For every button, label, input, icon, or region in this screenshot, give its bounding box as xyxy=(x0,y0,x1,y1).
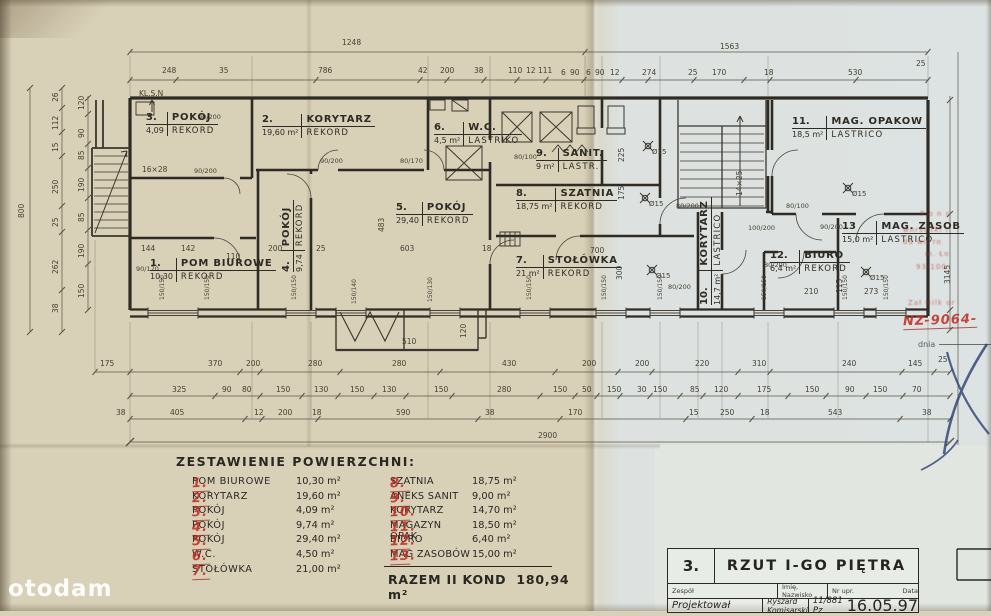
dim-label: 248 xyxy=(162,67,176,75)
room-label: 6. W.C. 4,5 m² LASTRIKO xyxy=(434,122,522,146)
dim-label: 100/200 xyxy=(748,225,775,232)
stamp-text-fragment: m. Ło xyxy=(925,250,950,258)
room-floor-finish: LASTRICO xyxy=(827,129,925,140)
dim-label: 225 xyxy=(618,148,626,162)
dim-label: 12 xyxy=(526,67,536,75)
summary-row-area: 4,09 m² xyxy=(296,505,390,516)
room-area: 4,5 m² xyxy=(434,135,464,146)
room-number: 3. xyxy=(146,112,168,125)
room-name: POKÓJ xyxy=(168,112,218,125)
summary-row-area: 4,50 m² xyxy=(296,549,390,560)
dim-label: 90/200 xyxy=(820,224,843,231)
room-number: 7. xyxy=(516,255,544,268)
room-area: 9,74 xyxy=(294,250,305,272)
dim-label: 90 xyxy=(595,69,605,77)
dim-label: 90 xyxy=(570,69,580,77)
room-name: SZATNIA xyxy=(556,188,617,201)
room-label: 5. POKÓJ 29,40 REKORD xyxy=(396,202,473,226)
dim-label: 150/150 xyxy=(843,275,849,300)
summary-row: 7. STOŁÓWKA 21,00 m² xyxy=(192,564,390,579)
summary-total-rule xyxy=(384,566,552,567)
title-block-extension xyxy=(957,549,991,580)
summary-row-area: 18,75 m² xyxy=(472,476,586,487)
room-number: 1. xyxy=(150,258,177,271)
summary-row-area: 15,00 m² xyxy=(472,549,586,560)
dim-label: 142 xyxy=(181,245,195,253)
dim-label: 80/200 xyxy=(676,203,699,210)
room-area: 14,7 m² xyxy=(712,270,723,305)
dim-label: 310 xyxy=(752,360,766,368)
room-area: 18,5 m² xyxy=(792,129,827,140)
dim-label: 170 xyxy=(712,69,726,77)
dim-label: Ø15 xyxy=(852,191,866,198)
summary-row-area: 29,40 m² xyxy=(296,534,390,545)
room-number: 5. xyxy=(396,202,423,215)
dim-label: Ø15 xyxy=(649,201,663,208)
staircase-left xyxy=(92,100,130,236)
room-area: 18,75 m² xyxy=(516,201,556,212)
room-area: 21 m² xyxy=(516,268,544,279)
dim-label: 210 xyxy=(804,288,818,296)
dim-label: 50 xyxy=(582,386,592,394)
dim-label: 150 xyxy=(607,386,621,394)
room-label: 2. KORYTARZ 19,60 m² REKORD xyxy=(262,114,375,138)
room-label: 8. SZATNIA 18,75 m² REKORD xyxy=(516,188,617,212)
dim-label: 25 xyxy=(688,69,698,77)
summary-row: 8. SZATNIA 18,75 m² xyxy=(390,476,586,491)
summary-row: 10. KORYTARZ 14,70 m² xyxy=(390,505,586,520)
dim-label: 150 xyxy=(805,386,819,394)
dim-label: 25 xyxy=(938,356,948,364)
dim-label: 16×28 xyxy=(142,166,167,174)
room-number: 11. xyxy=(792,116,827,129)
dim-label: 175 xyxy=(100,360,114,368)
dim-label: 18 xyxy=(312,409,322,417)
dim-label: 483 xyxy=(378,218,386,232)
dim-label: 430 xyxy=(502,360,516,368)
dim-label: 280 xyxy=(497,386,511,394)
dim-label: 262 xyxy=(52,260,60,274)
summary-row: 3. POKÓJ 4,09 m² xyxy=(192,505,390,520)
dim-label: 90/200 xyxy=(320,158,343,165)
dim-label: 370 xyxy=(208,360,222,368)
dim-label: 150/140 xyxy=(352,279,358,304)
title-block-values: ProjektowałRyszard Komisarski11/881 Pz16… xyxy=(668,599,918,612)
dim-label: 274 xyxy=(642,69,656,77)
room-name: BIURO xyxy=(800,250,850,263)
scanned-floor-plan: 1248156324835786422003811012111690690122… xyxy=(0,0,991,611)
dim-label: 110 xyxy=(508,67,522,75)
dim-label: 85 xyxy=(690,386,700,394)
room-floor-finish: REKORD xyxy=(294,200,305,250)
dim-label: 120 xyxy=(78,96,86,110)
dim-label: 150/150 xyxy=(884,275,890,300)
dim-label: 112 xyxy=(52,116,60,130)
dim-label: 250 xyxy=(52,180,60,194)
dim-label: 26 xyxy=(52,92,60,102)
summary-row: 5. POKÓJ 29,40 m² xyxy=(192,534,390,549)
watermark: otodam xyxy=(8,576,113,602)
room-number: 12. xyxy=(770,250,800,263)
dim-label: 240 xyxy=(842,360,856,368)
room-floor-finish: REKORD xyxy=(177,271,276,282)
dim-label: 700 xyxy=(590,247,604,255)
title-block-value-cell: 16.05.97 xyxy=(843,599,918,612)
dim-label: 175 xyxy=(757,386,771,394)
room-label: 4. POKÓJ 9,74 REKORD xyxy=(281,200,305,272)
summary-row-area: 9,00 m² xyxy=(472,491,586,502)
dim-label: 170 xyxy=(568,409,582,417)
stamp-text-fragment: P o n s xyxy=(920,210,950,218)
room-area: 9 m² xyxy=(536,161,559,172)
dim-label: 150 xyxy=(434,386,448,394)
summary-title: ZESTAWIENIE POWIERZCHNI: xyxy=(176,454,415,469)
dim-label: 273 xyxy=(864,288,878,296)
summary-row-area: 19,60 m² xyxy=(296,491,390,502)
dim-label: 175 xyxy=(618,186,626,200)
dim-label: 42 xyxy=(418,67,428,75)
title-block-value-cell: Projektował xyxy=(668,599,763,612)
dim-label: 12 xyxy=(254,409,264,417)
dim-label: 150 xyxy=(276,386,290,394)
summary-row-number: 13. xyxy=(390,549,411,566)
summary-row: 9. ANEKS SANIT 9,00 m² xyxy=(390,491,586,506)
dim-label: 150 xyxy=(653,386,667,394)
dim-label: 150 xyxy=(553,386,567,394)
dim-label: 80 xyxy=(242,386,252,394)
dim-label: 1563 xyxy=(720,43,739,51)
room-number: 4. xyxy=(281,250,294,272)
dim-label: 200 xyxy=(278,409,292,417)
dim-label: 70 xyxy=(912,386,922,394)
room-floor-finish: REKORD xyxy=(302,127,374,138)
dim-label: 603 xyxy=(400,245,414,253)
dim-label: 543 xyxy=(828,409,842,417)
room-area: 6,4 m² xyxy=(770,263,800,274)
summary-row-area: 10,30 m² xyxy=(296,476,390,487)
summary-total: RAZEM II KOND180,94 m² xyxy=(388,572,586,602)
dim-label: 220 xyxy=(695,360,709,368)
dim-label: 150/130 xyxy=(428,277,434,302)
room-number: 6. xyxy=(434,122,464,135)
room-label: 12. BIURO 6,4 m² REKORD xyxy=(770,250,850,274)
room-name: SANIT. xyxy=(559,148,607,161)
dim-label: 38 xyxy=(474,67,484,75)
dim-label: 144 xyxy=(141,245,155,253)
title-block: 3. RZUT I-GO PIĘTRA ZespółImię, Nazwisko… xyxy=(667,548,919,613)
room-floor-finish: REKORD xyxy=(800,263,850,274)
dim-label: 80/100 xyxy=(514,154,537,161)
dim-label: Ø15 xyxy=(870,275,884,282)
room-number: 8. xyxy=(516,188,556,201)
dim-label: 25 xyxy=(916,60,926,68)
dim-label: 120 xyxy=(460,324,468,338)
dim-label: 280 xyxy=(308,360,322,368)
summary-row: 13. MAG ZASOBÓW 15,00 m² xyxy=(390,549,586,564)
dim-label: 18 xyxy=(760,409,770,417)
room-number: 2. xyxy=(262,114,302,127)
stamp-text-fragment: 93-100 xyxy=(916,263,947,271)
room-floor-finish: REKORD xyxy=(168,125,218,136)
drawing-number: 3. xyxy=(668,549,715,583)
room-name: MAG. OPAKOW xyxy=(827,116,925,129)
dim-label: 120 xyxy=(714,386,728,394)
dim-label: 38 xyxy=(116,409,126,417)
room-floor-finish: LASTRIKO xyxy=(464,135,522,146)
pen-scribble xyxy=(921,344,989,470)
room-name: POKÓJ xyxy=(281,200,294,250)
summary-total-label: RAZEM II KOND xyxy=(388,572,506,587)
dim-label: 6 xyxy=(586,69,591,77)
dim-label: 38 xyxy=(922,409,932,417)
room-label: 7. STOŁÓWKA 21 m² REKORD xyxy=(516,255,621,279)
room-label: 11. MAG. OPAKOW 18,5 m² LASTRICO xyxy=(792,116,926,140)
dim-label: 200 xyxy=(582,360,596,368)
room-area: 19,60 m² xyxy=(262,127,302,138)
dim-label: 18 xyxy=(764,69,774,77)
summary-row: 4. POKÓJ 9,74 m² xyxy=(192,520,390,535)
dim-label: 30 xyxy=(637,386,647,394)
room-number: 13 xyxy=(842,221,877,234)
dim-label: 325 xyxy=(172,386,186,394)
room-area: 29,40 xyxy=(396,215,423,226)
dim-label: 111 xyxy=(538,67,552,75)
dim-label: 200 xyxy=(440,67,454,75)
room-name: POKÓJ xyxy=(423,202,473,215)
title-block-row-title: 3. RZUT I-GO PIĘTRA xyxy=(668,549,918,584)
dim-label: 1248 xyxy=(342,39,361,47)
dim-label: 80/200 xyxy=(668,284,691,291)
dim-label: 18 xyxy=(482,245,492,253)
room-name: W.C. xyxy=(464,122,522,135)
dim-label: 150 xyxy=(873,386,887,394)
dim-label: 150 xyxy=(350,386,364,394)
room-floor-finish: REKORD xyxy=(423,215,473,226)
dim-label: 190 xyxy=(78,178,86,192)
dim-label: 200 xyxy=(635,360,649,368)
room-number: 9. xyxy=(536,148,559,161)
summary-row-area: 9,74 m² xyxy=(296,520,390,531)
staircase-right xyxy=(678,100,766,208)
dim-label: 38 xyxy=(485,409,495,417)
room-number: 10. xyxy=(699,270,712,305)
summary-row: 11. MAGAZYN OPAK 18,50 m² xyxy=(390,520,586,535)
dim-label: 85 xyxy=(78,212,86,222)
dim-label: KL.S.N xyxy=(139,90,163,98)
dim-label: 38 xyxy=(52,303,60,313)
dim-label: 12 xyxy=(610,69,620,77)
room-label: 3. POKÓJ 4,09 REKORD xyxy=(146,112,218,136)
stamp-number: NZ-9064- xyxy=(903,312,978,331)
dim-label: 15 xyxy=(689,409,699,417)
dim-label: 190 xyxy=(78,244,86,258)
summary-row-area: 14,70 m² xyxy=(472,505,586,516)
summary-row: 1. POM BIUROWE 10,30 m² xyxy=(192,476,390,491)
dim-label: 90 xyxy=(845,386,855,394)
dim-label: 85 xyxy=(78,150,86,160)
dim-label: 590 xyxy=(396,409,410,417)
dim-label: 15 xyxy=(52,142,60,152)
summary-column-1: 1. POM BIUROWE 10,30 m² 2. KORYTARZ 19,6… xyxy=(192,476,390,578)
dim-label: 280 xyxy=(392,360,406,368)
dim-label: 6 xyxy=(561,69,566,77)
area-summary: ZESTAWIENIE POWIERZCHNI: 1. POM BIUROWE … xyxy=(176,452,586,602)
dim-label: 800 xyxy=(18,204,26,218)
stamp-text-fragment: Zał wilk or xyxy=(908,299,955,307)
summary-column-2: 8. SZATNIA 18,75 m² 9. ANEKS SANIT 9,00 … xyxy=(390,476,586,564)
room-floor-finish: REKORD xyxy=(544,268,621,279)
room-label: 9. SANIT. 9 m² LASTR. xyxy=(536,148,607,172)
room-name: STOŁÓWKA xyxy=(544,255,621,268)
room-label: 1. POM BIUROWE 10,30 REKORD xyxy=(150,258,276,282)
dim-label: 130 xyxy=(382,386,396,394)
dim-label: 150 xyxy=(78,284,86,298)
room-area: 15,0 m² xyxy=(842,234,877,245)
dim-label: 25 xyxy=(316,245,326,253)
room-area: 4,09 xyxy=(146,125,168,136)
drawing-title: RZUT I-GO PIĘTRA xyxy=(715,549,918,583)
dim-label: 14×25 xyxy=(736,171,744,196)
title-block-header-cell: Zespół xyxy=(668,584,778,598)
stamp-text-fragment: da wil ro xyxy=(903,238,942,246)
dim-label: 25 xyxy=(52,217,60,227)
summary-row-area: 21,00 m² xyxy=(296,564,390,575)
summary-row: 2. KORYTARZ 19,60 m² xyxy=(192,491,390,506)
dim-label: Ø15 xyxy=(656,273,670,280)
summary-row-area: 6,40 m² xyxy=(472,534,586,545)
dim-label: 145 xyxy=(908,360,922,368)
dim-label: 90 xyxy=(222,386,232,394)
dim-label: 2900 xyxy=(538,432,557,440)
dim-label: 510 xyxy=(402,338,416,346)
stamp-date-line: dnia xyxy=(918,340,991,349)
summary-row-area: 18,50 m² xyxy=(472,520,586,531)
dim-label: 405 xyxy=(170,409,184,417)
dim-label: 530 xyxy=(848,69,862,77)
room-name: KORYTARZ xyxy=(302,114,374,127)
dim-label: 250 xyxy=(720,409,734,417)
room-name: POM BIUROWE xyxy=(177,258,276,271)
room-name: KORYTARZ xyxy=(699,197,712,269)
stamp-text-fragment: wnrst tki i xyxy=(903,226,949,234)
dim-label: 80/100 xyxy=(786,203,809,210)
room-floor-finish: LASTR. xyxy=(559,161,607,172)
dim-label: 90 xyxy=(78,128,86,138)
room-label: 10. KORYTARZ 14,7 m² LASTRICO xyxy=(699,197,723,305)
dim-label: 35 xyxy=(219,67,229,75)
dim-label: Ø15 xyxy=(652,149,666,156)
dim-label: 90/200 xyxy=(194,168,217,175)
summary-row-number: 7. xyxy=(192,563,211,580)
dim-label: 200 xyxy=(246,360,260,368)
dim-label: 150/150 xyxy=(762,275,768,300)
room-floor-finish: LASTRICO xyxy=(712,197,723,269)
title-block-value-cell: 11/881 Pz xyxy=(809,599,843,612)
title-block-value-cell: Ryszard Komisarski xyxy=(763,599,809,612)
dim-label: 80/170 xyxy=(400,158,423,165)
dim-label: 150/150 xyxy=(292,275,298,300)
dim-label: 786 xyxy=(318,67,332,75)
summary-row: 6. W.C. 4,50 m² xyxy=(192,549,390,564)
room-area: 10,30 xyxy=(150,271,177,282)
room-floor-finish: REKORD xyxy=(556,201,617,212)
summary-row: 12. BIURO 6,40 m² xyxy=(390,534,586,549)
dim-label: 130 xyxy=(314,386,328,394)
